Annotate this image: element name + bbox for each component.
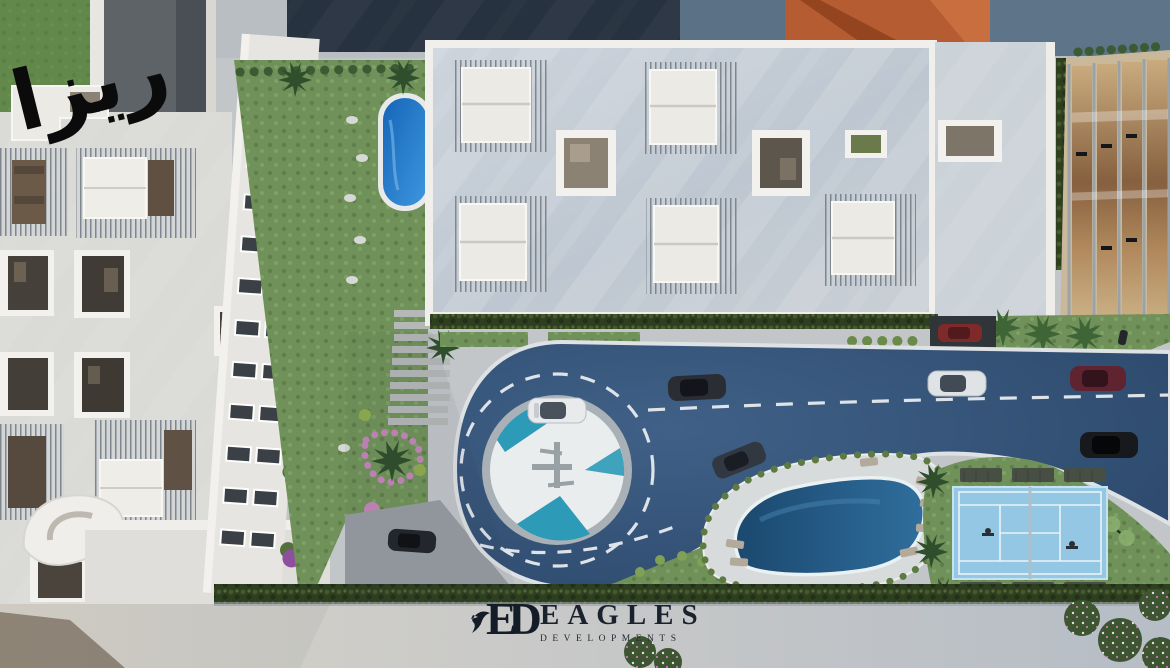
skylight-courtyard <box>556 130 616 196</box>
car-black <box>1080 432 1138 458</box>
pergola <box>452 60 550 152</box>
developer-subtitle: DEVELOPMENTS <box>540 634 706 644</box>
car-dark-suv <box>667 373 726 401</box>
monogram-letters: ED <box>486 592 534 645</box>
developer-logo: ED EAGLES DEVELOPMENTS <box>474 596 706 648</box>
aerial-render-canvas: ريزا ED EAGLES DEVELOPMENTS <box>0 0 1170 668</box>
carport <box>930 316 996 348</box>
terracotta-roofs <box>785 0 995 42</box>
developer-name: EAGLES <box>540 601 706 630</box>
building-base-hedge <box>430 314 938 329</box>
car-maroon <box>1070 366 1126 391</box>
pergola <box>824 194 916 286</box>
cast-shadow <box>0 604 330 668</box>
scene <box>0 0 1170 668</box>
roof-pergola-group-north <box>0 148 196 238</box>
pergola <box>452 196 548 292</box>
developer-wordmark: EAGLES DEVELOPMENTS <box>540 601 706 644</box>
skylight-courtyard <box>752 130 810 196</box>
retail-glass-strip <box>1060 46 1170 338</box>
pergola <box>646 198 740 294</box>
car-white <box>528 398 586 423</box>
car-white-2 <box>928 371 986 396</box>
main-building-roof <box>425 40 1069 329</box>
green-skylight <box>845 130 887 158</box>
garden-pool <box>383 98 427 206</box>
ed-monogram: ED <box>474 596 532 648</box>
pergola <box>642 62 738 154</box>
